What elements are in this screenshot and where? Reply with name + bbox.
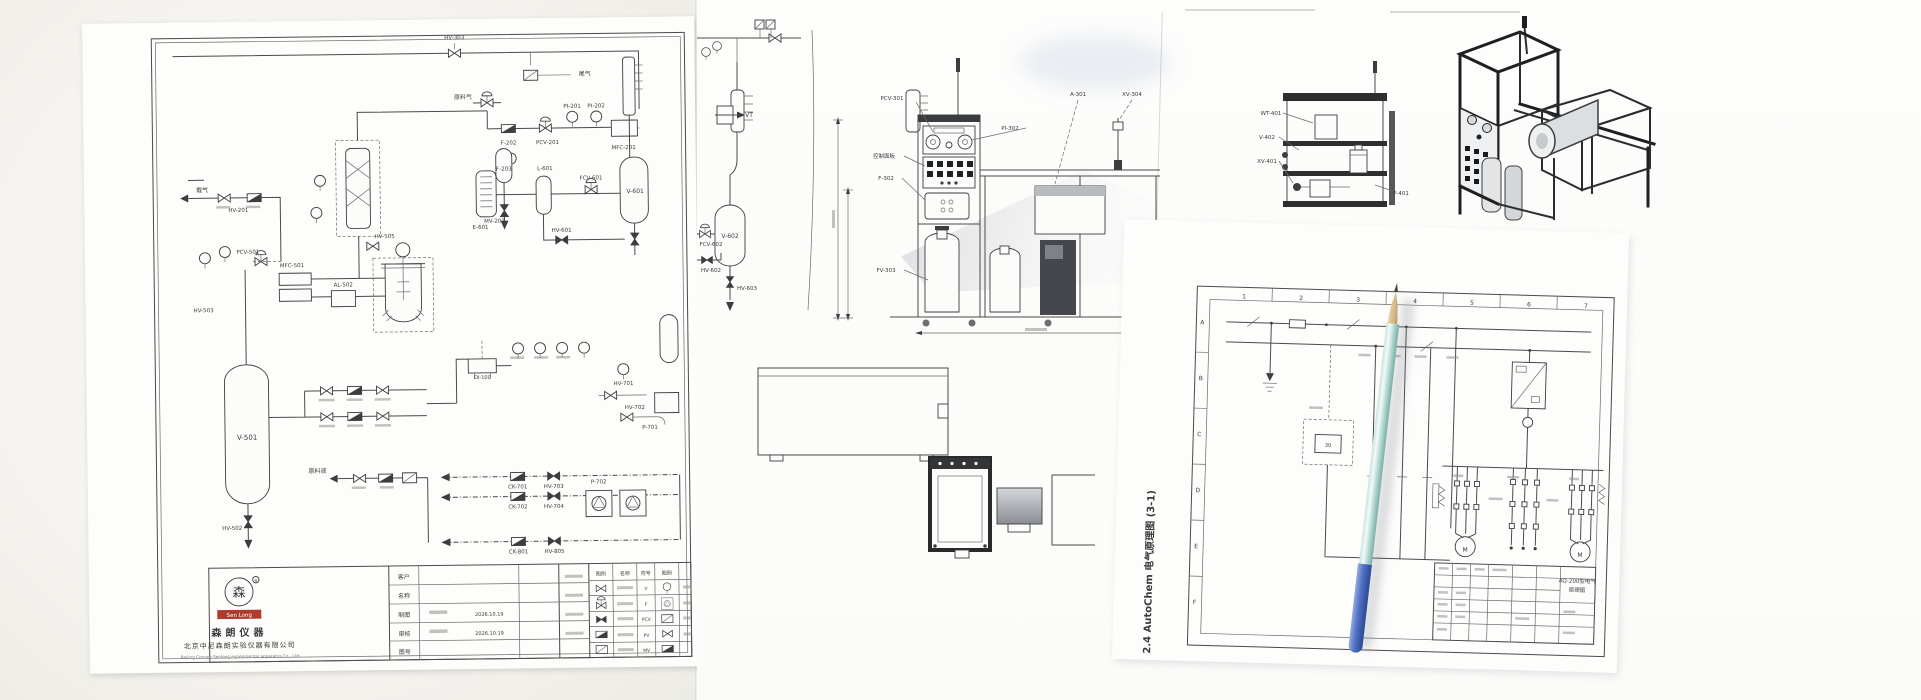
drawing-label: CK-801 [509,549,528,555]
drawing-label: 控制面板 [873,152,896,160]
drawing-label: HV-502 [222,526,242,532]
drawing-label: WT-401 [1261,111,1282,117]
drawing-label: A-301 [1070,92,1086,98]
drawing-label: M [1462,547,1467,554]
drawing-label: 6 [1527,301,1531,308]
drawing-label: 2 [1299,295,1303,302]
legend-table: 图例 名称 符号 图例 V F PCV PV MV [589,562,692,657]
page-top-edge [1185,9,1315,11]
svg-text:V: V [644,586,648,592]
drawing-label: 尾气 [579,70,591,78]
pid-linework [172,41,680,550]
drawing-label: PCV-201 [536,140,559,146]
enclosure-detail-2 [930,458,1095,558]
drawing-label: XV-304 [1122,92,1142,98]
photo-of-engineering-drawings: HV-303尾气原料气载气F-202PCV-201PI-201PI-202MFC… [0,0,1921,700]
drawing-label: CK-701 [508,484,527,490]
drawing-label: F-202 [501,140,517,146]
drawing-label: VT [745,112,753,119]
drawing-label: E-601 [473,225,489,231]
isometric-render [1392,8,1662,228]
company-logo: 森 R Sen Long [217,576,262,619]
door-window [1045,245,1063,259]
vessel-v501 [224,365,270,550]
svg-text:PV: PV [644,633,651,639]
drawing-label: 2.4 AutoChem 电气原理图 (3-1) [1140,490,1158,654]
drawing-label: 3 [1356,297,1360,304]
drawing-label: AL-502 [334,282,353,288]
drawing-label: V-402 [1259,135,1275,141]
drawing-label: M [1577,552,1582,559]
svg-text:符号: 符号 [641,570,651,577]
drawing-label: FV-303 [876,268,896,274]
drawing-label: MFC-201 [611,145,635,151]
drawing-label: L-601 [537,166,553,172]
drawing-label: P-702 [591,479,607,485]
drawing-label: C [1197,431,1201,438]
drawing-label: HV-602 [701,268,721,274]
drawing-label: FCV-601 [579,175,602,181]
gas-cylinders [925,226,1020,312]
drawing-label: PCV-301 [880,96,903,102]
pencil-wood-cone [1387,291,1401,324]
svg-text:PCV: PCV [642,617,652,623]
drawing-label: PI-201 [563,104,580,110]
enclosure-detail-1 [758,368,948,461]
drawing-label: 5 [1470,300,1474,307]
drawing-label: B [1199,375,1203,382]
svg-text:图号: 图号 [399,649,411,656]
svg-text:MV: MV [643,648,651,654]
drawing-label: HV-303 [444,35,465,41]
drawing-label: HV-505 [375,234,396,240]
drawing-label: MFC-501 [280,263,304,269]
drawing-label: HV-805 [544,549,565,555]
drawing-label: F-302 [878,176,894,182]
pid-drawing: HV-303尾气原料气载气F-202PCV-201PI-201PI-202MFC… [82,16,702,673]
drawing-label: F [1193,599,1197,606]
drawing-label: HV-201 [228,208,248,214]
drawing-label: V-602 [721,233,739,240]
drawing-label: DI-100 [474,375,491,381]
drawing-label: P-701 [642,425,658,431]
drawing-label: PI-202 [587,103,604,109]
drawing-label: 原料液 [308,467,326,475]
drawing-label: FCV-602 [700,242,723,248]
svg-text:名称: 名称 [620,570,630,577]
svg-text:2026.10.19: 2026.10.19 [475,631,504,637]
drawing-label: CK-702 [508,504,527,510]
svg-text:R: R [254,578,257,583]
drawing-label: AQ-200型电气 [1559,576,1597,585]
svg-text:F: F [645,602,648,608]
pid-sheet: HV-303尾气原料气载气F-202PCV-201PI-201PI-202MFC… [82,16,702,673]
svg-text:2026.10.19: 2026.10.19 [475,612,504,618]
drawing-label: 原理图 [1569,586,1586,594]
drawing-label: HV-704 [544,504,565,510]
svg-text:森: 森 [232,586,245,601]
svg-text:客户: 客户 [398,573,410,581]
pencil-graphite-tip [1394,283,1399,292]
drawing-label: 载气 [196,186,208,194]
svg-text:Sen Long: Sen Long [227,613,252,619]
drawing-label: E [1194,543,1198,550]
elevation-drawing: PCV-301PI-302控制面板F-302FV-303A-301XV-304 [830,40,1170,340]
drawing-label: HV-601 [552,228,572,234]
drawing-label: F-203 [496,167,512,173]
circuit-linework [1220,316,1609,565]
pid-fragment-page: VTV-602FCV-602HV-602HV-603 [697,10,837,320]
drawing-label: V-501 [237,434,257,442]
drawing-label: D [1195,487,1200,494]
drawing-label: HV-603 [737,286,758,292]
svg-text:审核: 审核 [398,630,410,638]
reactor-symbol [373,242,434,332]
drawing-label: XV-401 [1257,159,1277,165]
enclosure-details [750,360,1100,565]
company-line-cn: 北京中尼森朗实验仪器有限公司 [184,640,296,650]
drawing-label: 1 [1242,293,1246,300]
drawing-label: 7 [1584,303,1588,310]
drawing-label: HV-701 [613,381,633,387]
drawing-label: A [1200,319,1205,326]
drawing-label: V-601 [626,188,644,195]
svg-text:图例: 图例 [662,570,672,577]
drawing-label: HV-702 [625,405,645,411]
svg-text:制图: 制图 [398,611,410,619]
drawing-label: 原料气 [454,93,472,101]
drawing-label: PI-302 [1001,126,1018,132]
svg-text:名称: 名称 [398,592,410,600]
drawing-label: PCV-501 [236,250,259,256]
pid-title-block: 森 R Sen Long 森朗仪器 北京中尼森朗实验仪器有限公司 Beijing… [179,562,691,662]
svg-text:图例: 图例 [596,570,606,577]
side-view-drawing: WT-401V-402XV-401P-401 [1255,55,1415,230]
company-name-en: Beijing Censen Senlong experimental appa… [181,653,300,659]
drawing-label: HV-703 [544,484,565,490]
electrical-title-block [1433,563,1596,644]
company-name-cn: 森朗仪器 [210,626,267,640]
drawing-label: 30 [1325,443,1332,449]
drawing-label: HV-503 [194,308,215,314]
